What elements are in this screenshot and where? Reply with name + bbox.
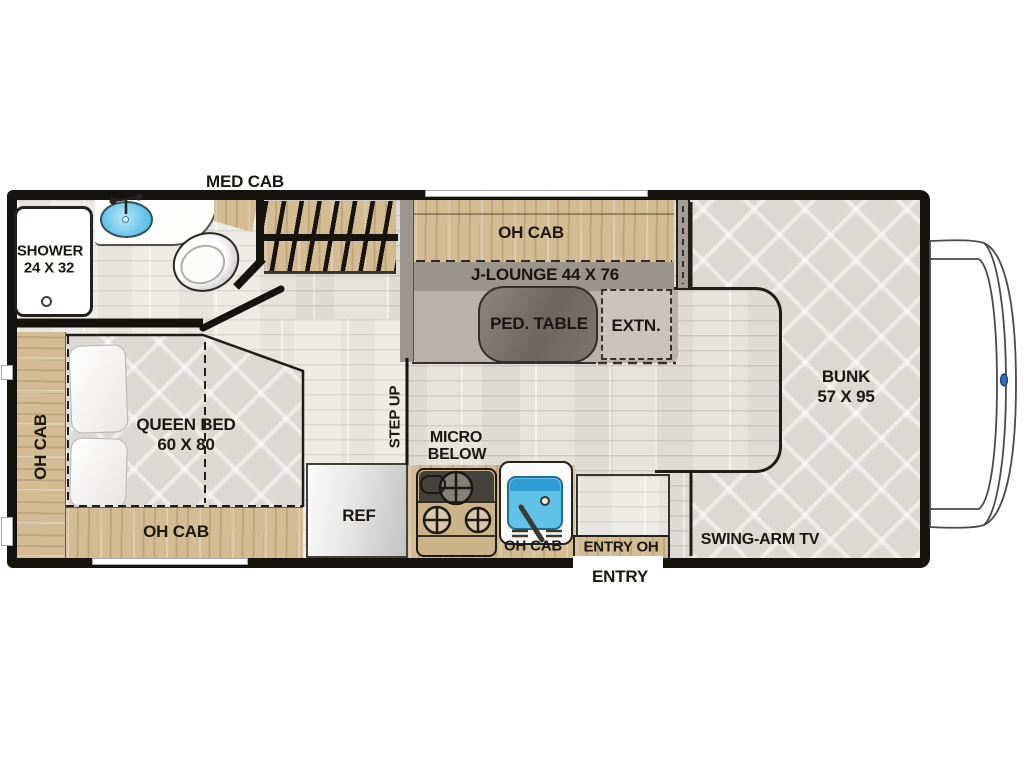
kitchen-sink-rinse bbox=[510, 479, 560, 491]
window-top bbox=[425, 190, 648, 197]
label-extn: EXTN. bbox=[611, 316, 660, 336]
label-oh-cab-dinette: OH CAB bbox=[498, 223, 564, 243]
dinette-divider bbox=[676, 200, 690, 288]
label-queen-bed-1: QUEEN BED bbox=[136, 415, 235, 435]
floorplan-canvas: MED CAB SHOWER 24 X 32 OH CAB QUEEN BED … bbox=[0, 0, 1024, 768]
window-bottom-bedroom bbox=[92, 558, 248, 565]
cab-front bbox=[930, 240, 1016, 527]
sink-drain bbox=[122, 216, 129, 223]
label-ref: REF bbox=[342, 506, 375, 526]
label-entry-oh: ENTRY OH bbox=[583, 539, 658, 556]
label-swing-arm-tv: SWING-ARM TV bbox=[701, 531, 819, 549]
label-oh-cab-kitchen: OH CAB bbox=[504, 538, 562, 555]
jlounge-arm bbox=[400, 200, 414, 362]
label-jlounge: J-LOUNGE 44 X 76 bbox=[471, 265, 619, 285]
label-micro-1: MICRO bbox=[430, 429, 482, 447]
wardrobe-ladder-rail bbox=[262, 234, 398, 241]
label-shower-1: SHOWER bbox=[17, 243, 83, 260]
ford-logo bbox=[1001, 374, 1008, 386]
label-step-up: STEP UP bbox=[387, 386, 404, 449]
pillow bbox=[69, 437, 128, 508]
label-entry: ENTRY bbox=[592, 567, 648, 587]
label-queen-bed-2: 60 X 80 bbox=[157, 435, 214, 455]
label-ped-table: PED. TABLE bbox=[490, 314, 588, 334]
label-med-cab: MED CAB bbox=[206, 172, 284, 192]
shower-drain bbox=[41, 296, 52, 307]
wardrobe-base-line bbox=[264, 271, 396, 274]
label-bunk-2: 57 X 95 bbox=[817, 387, 874, 407]
label-micro-2: BELOW bbox=[428, 446, 487, 464]
label-oh-cab-left: OH CAB bbox=[31, 414, 51, 480]
entry-landing bbox=[576, 474, 670, 536]
label-shower-2: 24 X 32 bbox=[24, 260, 74, 277]
stove-back-panel bbox=[419, 471, 494, 501]
dinette-cab-seam bbox=[414, 213, 674, 215]
label-oh-cab-bed: OH CAB bbox=[143, 522, 209, 542]
label-bunk-1: BUNK bbox=[822, 367, 870, 387]
window-rear-lower bbox=[1, 517, 13, 546]
window-rear-upper bbox=[1, 365, 13, 380]
pillow bbox=[68, 344, 128, 434]
